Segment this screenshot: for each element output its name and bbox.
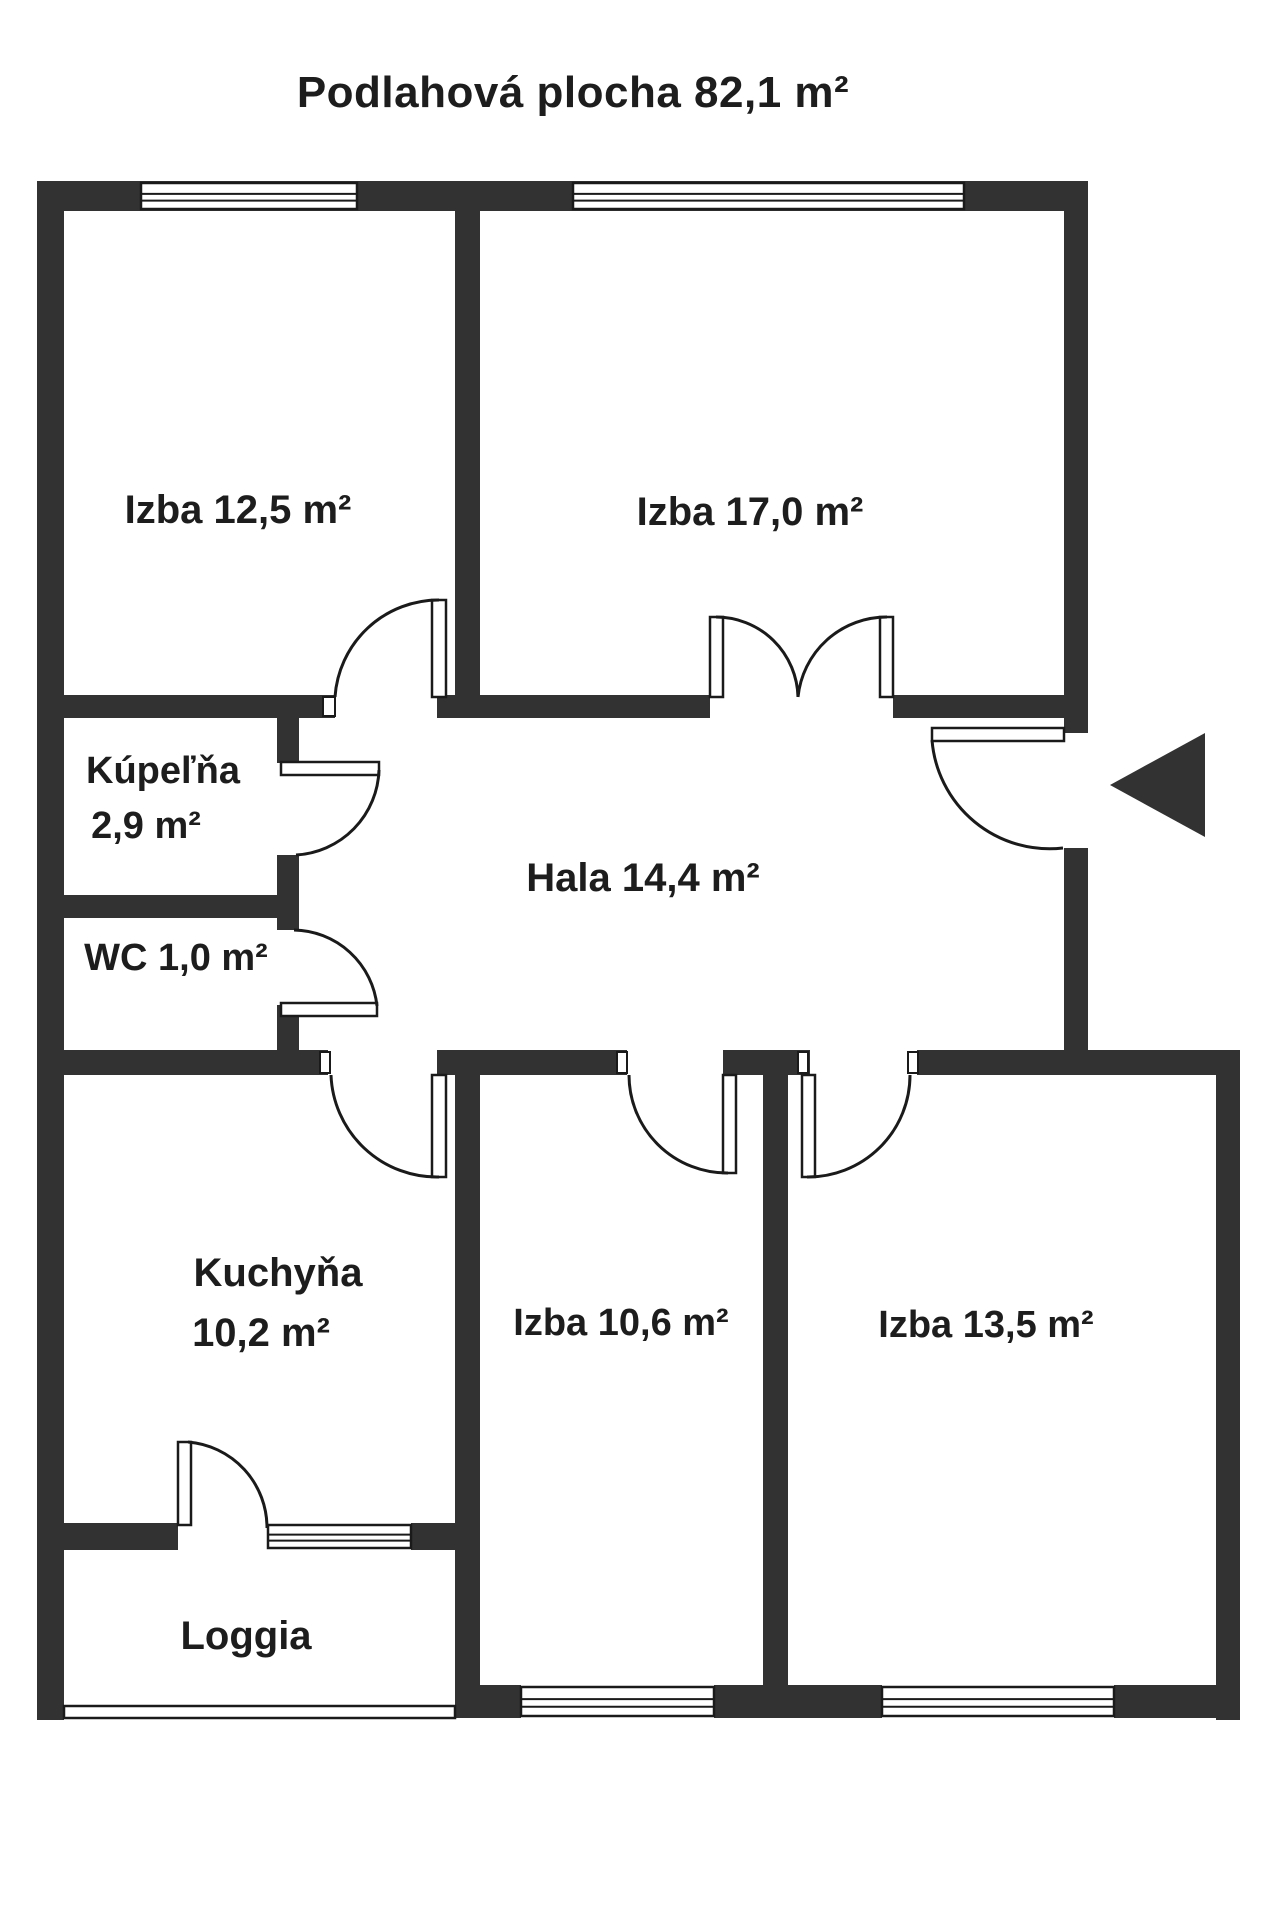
door-leaf-loggia [178,1442,191,1525]
wall-bottom-b [714,1685,882,1718]
door-jamb-izba125 [323,697,335,716]
windows-group [141,183,1114,1716]
window-izba17-top-frame [573,183,964,209]
wall-kupelna-right-a [277,695,299,763]
wall-loggia-top-right [411,1523,455,1550]
room-label-hala: Hala 14,4 m² [526,856,759,900]
door-arc-izba135 [807,1075,910,1177]
wall-outer-right-mid [1064,848,1088,1072]
door-leaf-entry [932,728,1064,741]
wall-kupelna-wc-divider [64,895,299,918]
door-arc-double-right [798,617,887,697]
window-izba17-top [573,183,964,209]
loggia-rail [64,1706,455,1718]
window-izba106-bottom [521,1687,714,1716]
room-label-izba-12-5: Izba 12,5 m² [125,488,352,532]
room-label-kupelna-line-0: Kúpeľňa [86,750,241,792]
door-leaf-kupelna [281,762,379,775]
entrance-arrow-icon [1110,733,1205,837]
window-izba106-bottom-frame [521,1687,714,1716]
door-jamb-izba106 [617,1052,627,1073]
wall-outer-right-upper [1064,181,1088,733]
door-arc-kuchyna [331,1075,439,1177]
wall-kupelna-right-b [277,855,299,930]
room-label-kupelna-line-1: 2,9 m² [91,805,201,847]
wall-outer-left [37,181,64,1720]
wall-hala-bottom-a [64,1050,328,1075]
wall-hala-bottom-d [917,1050,1240,1075]
wall-loggia-top-left [64,1523,178,1550]
room-label-kuchyna-line-0: Kuchyňa [194,1251,364,1295]
wall-hala-bottom-c [723,1050,810,1075]
wall-izba17-bottom-left [480,695,710,718]
room-label-izba-10-6: Izba 10,6 m² [513,1302,728,1344]
room-label-izba-13-5: Izba 13,5 m² [878,1304,1093,1346]
room-label-kuchyna-line-1: 10,2 m² [192,1311,330,1355]
window-izba125-top-frame [141,183,357,209]
wall-divider-top-rooms [455,205,480,718]
door-leaf-izba106 [723,1075,736,1173]
window-kuchyna-loggia [268,1525,411,1548]
wall-izba125-bottom-right [437,695,480,718]
floor-plan: Izba 12,5 m²Izba 17,0 m²Kúpeľňa2,9 m²WC … [0,0,1280,1920]
door-arc-izba125 [335,600,439,697]
window-izba125-top [141,183,357,209]
door-arc-loggia [188,1442,267,1528]
wall-hala-bottom-b [437,1050,627,1075]
door-arc-kupelna [296,770,379,855]
door-leaf-kuchyna [432,1075,446,1177]
wall-kuchyna-divider [455,1072,480,1718]
door-leaf-izba135 [802,1075,815,1177]
room-label-loggia: Loggia [180,1614,312,1658]
door-arc-entry [932,740,1063,849]
loggia-rail-group [64,1706,455,1718]
door-arc-izba106 [629,1075,728,1173]
entrance-group [1110,733,1205,837]
door-jamb-izba135-r [908,1052,918,1073]
door-leaf-wc [281,1003,377,1016]
window-kuchyna-loggia-frame [268,1525,411,1548]
door-arc-wc [294,930,377,1006]
window-izba135-bottom [882,1687,1114,1716]
wall-izba17-bottom-right [893,695,1088,718]
wall-bottom-a [455,1685,521,1718]
wall-outer-right-lower [1216,1050,1240,1720]
room-label-wc: WC 1,0 m² [84,937,268,979]
door-leaf-double-right [880,617,893,697]
door-jamb-kuchyna [320,1052,330,1073]
door-arc-double-left [716,617,798,697]
wall-bottom-c [1114,1685,1240,1718]
door-leaf-double-left [710,617,723,697]
door-leaf-izba125 [432,600,446,697]
room-label-izba-17-0: Izba 17,0 m² [637,490,864,534]
door-jamb-izba135-l [798,1052,808,1073]
wall-izba-divider [763,1072,788,1685]
window-izba135-bottom-frame [882,1687,1114,1716]
